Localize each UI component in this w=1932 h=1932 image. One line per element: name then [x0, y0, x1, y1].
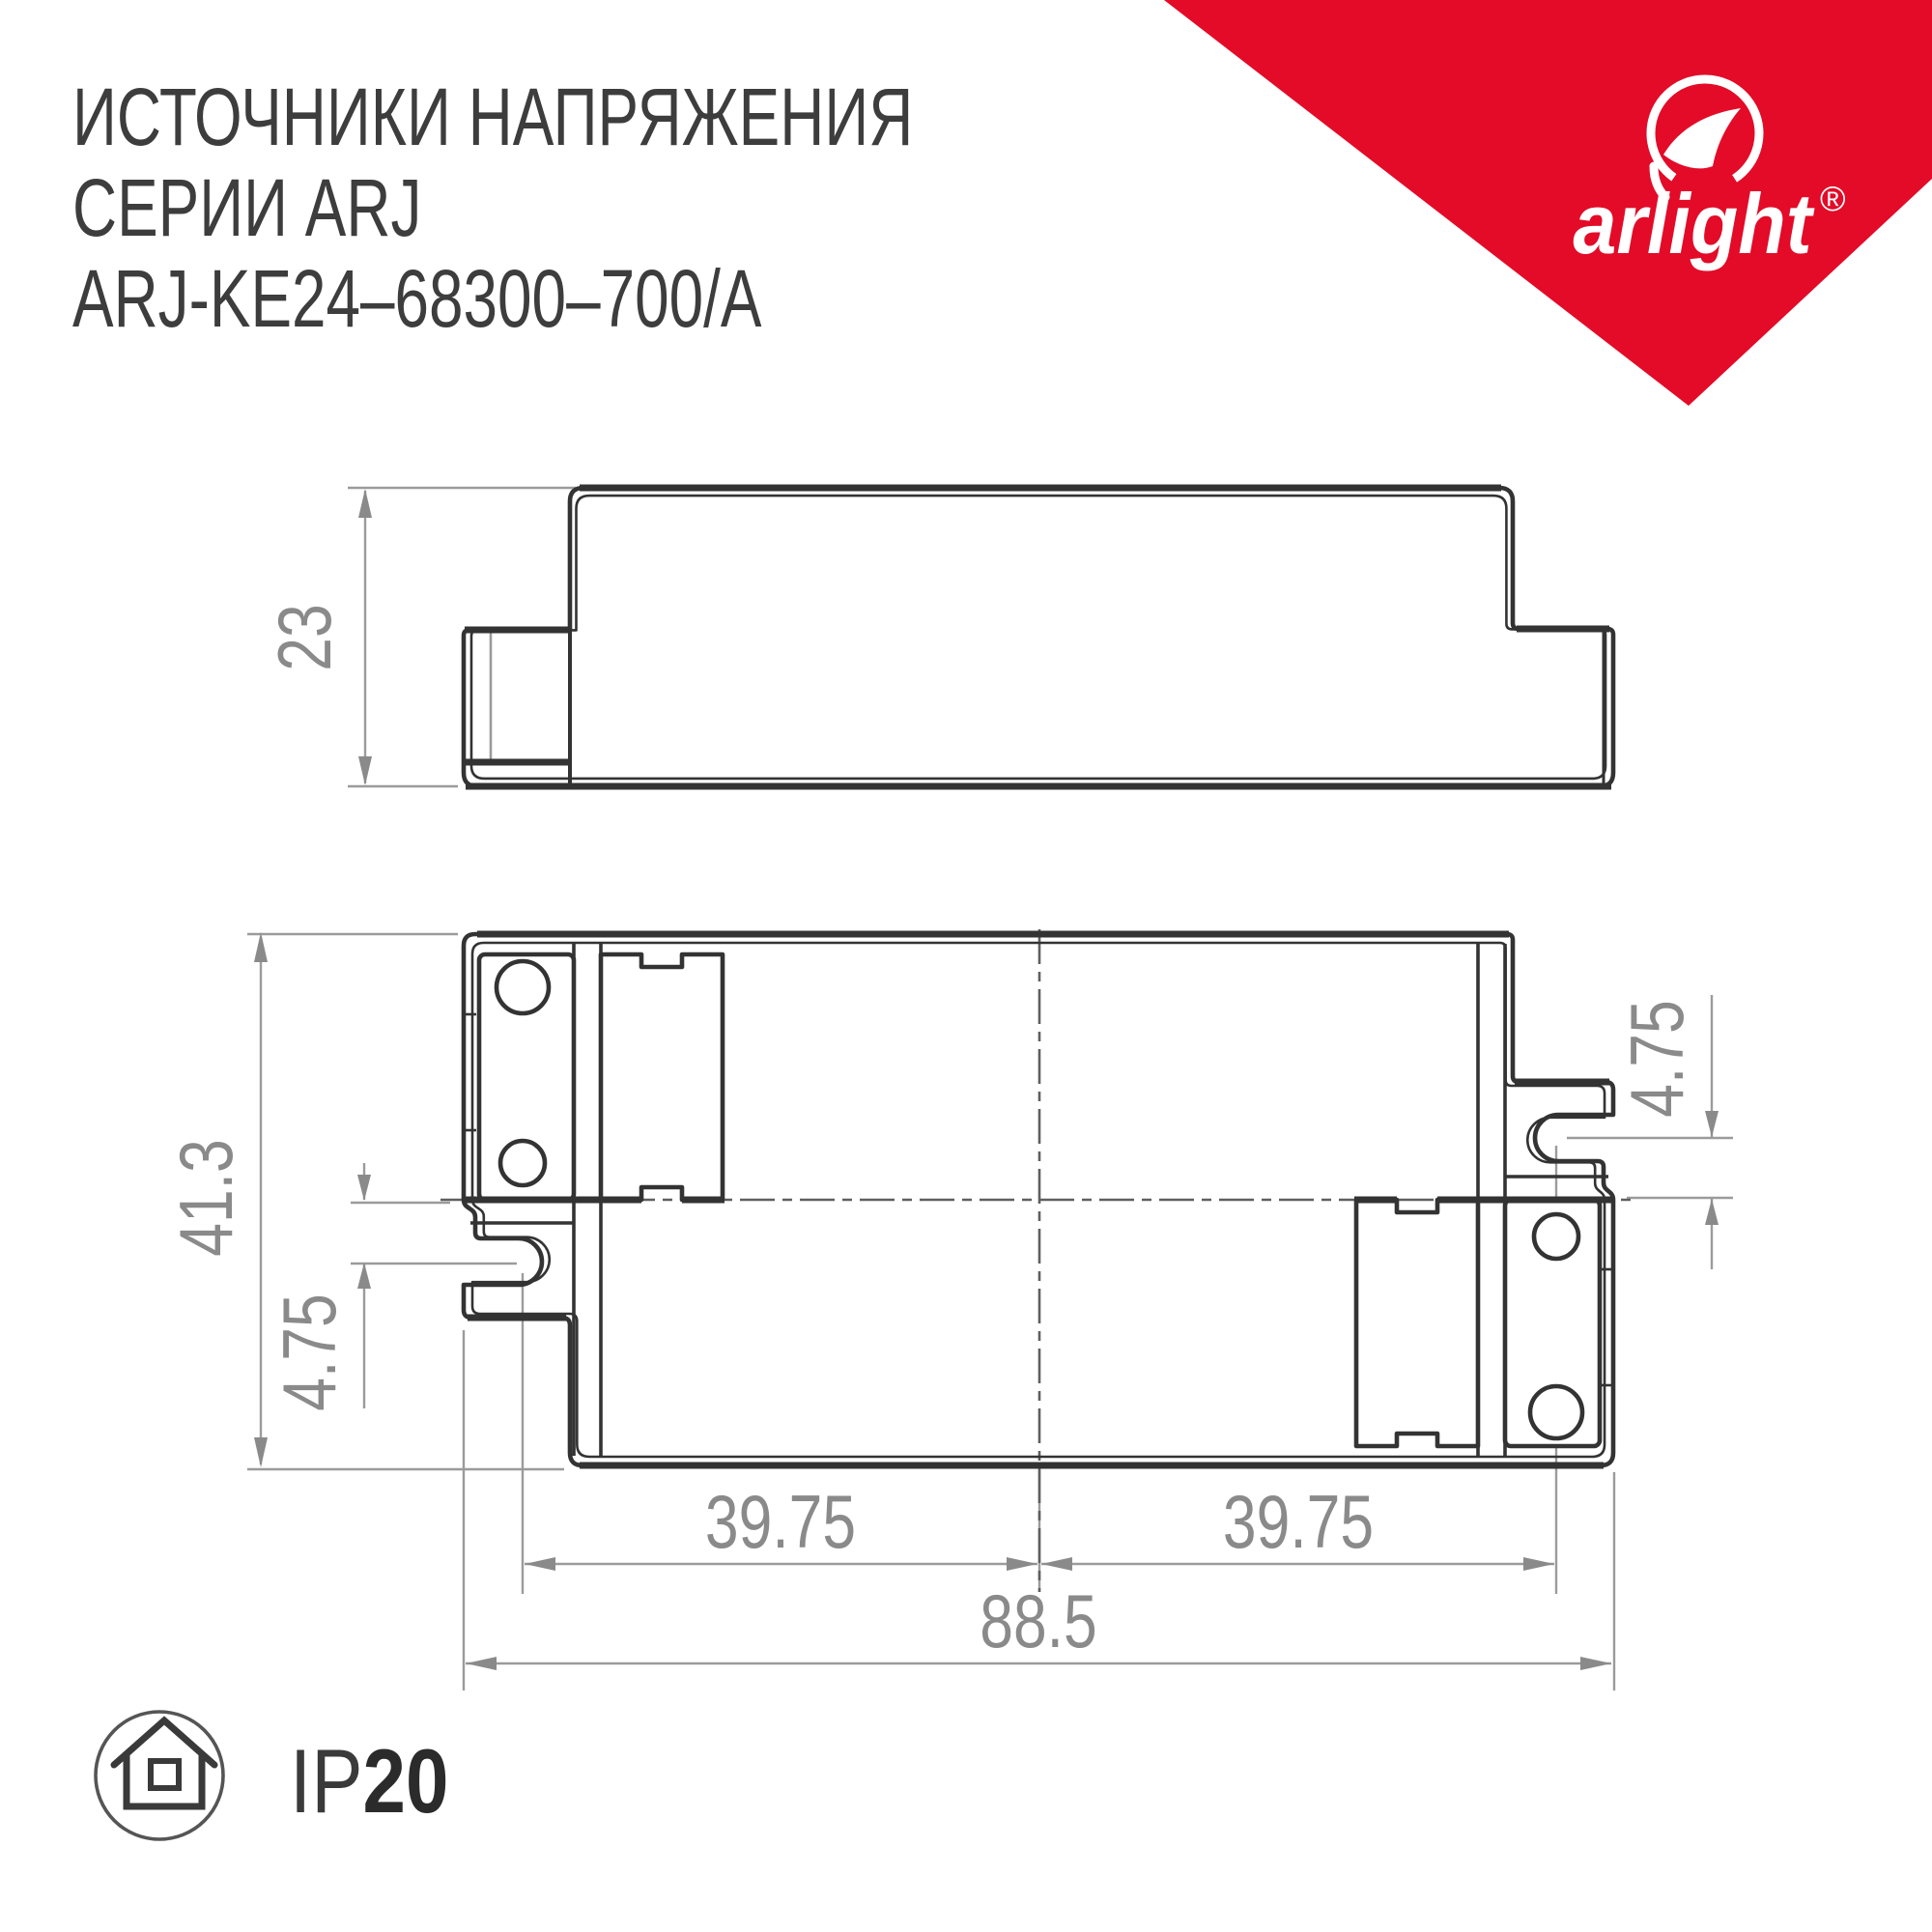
house-in-circle-icon: [96, 1712, 223, 1839]
ip-rating-block: [0, 0, 1932, 1932]
ip-rating-prefix: IP: [290, 1730, 363, 1832]
ip-rating-label: IP20: [290, 1729, 448, 1833]
spec-sheet-page: ИСТОЧНИКИ НАПРЯЖЕНИЯ СЕРИИ ARJ ARJ-KE24–…: [0, 0, 1932, 1932]
ip-rating-value: 20: [363, 1730, 449, 1832]
